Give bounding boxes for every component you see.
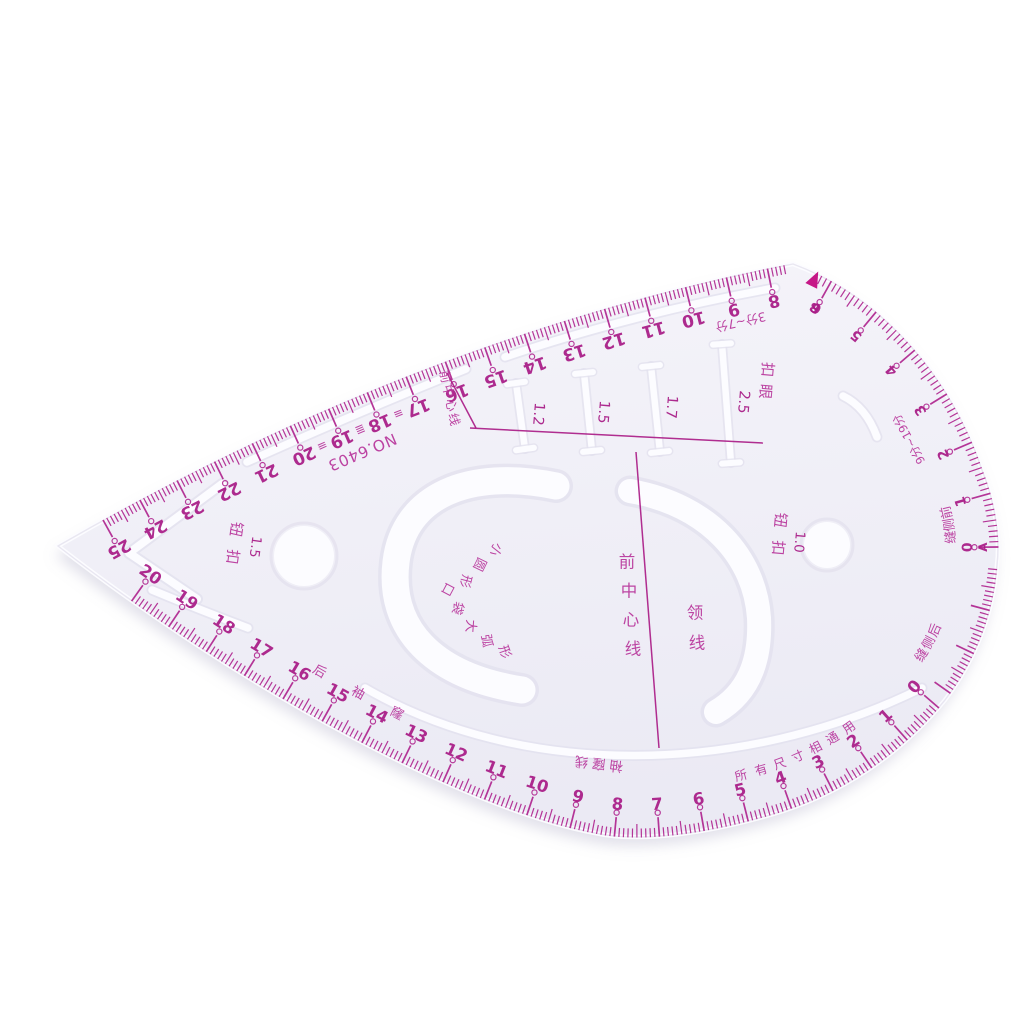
button-left-size: 1.5 [246, 535, 265, 559]
buttonhole-size-label: 1.7 [662, 395, 680, 419]
bottom-scale-number: 8 [611, 794, 624, 814]
pocket-arc-label: 大 [462, 619, 478, 633]
front-side-seam-label: 侧 [941, 517, 958, 532]
side-scale-zero-letter: A [976, 542, 990, 552]
button-hole-left [274, 526, 334, 586]
neck-line-label: 线 [689, 634, 706, 653]
front-center-label: 中 [621, 582, 638, 601]
side-scale-number: 0 [960, 542, 976, 552]
product-photo: 2524232221201918171615141312111098≡≣≡3分~… [0, 0, 1024, 1024]
front-center-label: 前 [619, 553, 636, 572]
sewing-ruler-scene: 2524232221201918171615141312111098≡≣≡3分~… [0, 0, 1024, 1024]
button-right-size: 1.0 [790, 531, 808, 554]
buttonhole-size-label: 1.2 [529, 402, 547, 426]
buttonhole-size-label: 2.5 [734, 390, 752, 414]
buttonhole-title: 扣眼 [755, 361, 777, 406]
front-center-label: 心 [623, 611, 640, 630]
pocket-arc-label: 弧 [478, 634, 495, 649]
buttonhole-size-label: 1.5 [594, 400, 612, 424]
front-center-label: 线 [625, 640, 642, 659]
front-side-seam-label: 缝 [943, 530, 959, 544]
bottom-scale-number: 7 [651, 794, 664, 814]
neck-line-label: 领 [687, 604, 704, 623]
button-hole-right [804, 522, 850, 568]
